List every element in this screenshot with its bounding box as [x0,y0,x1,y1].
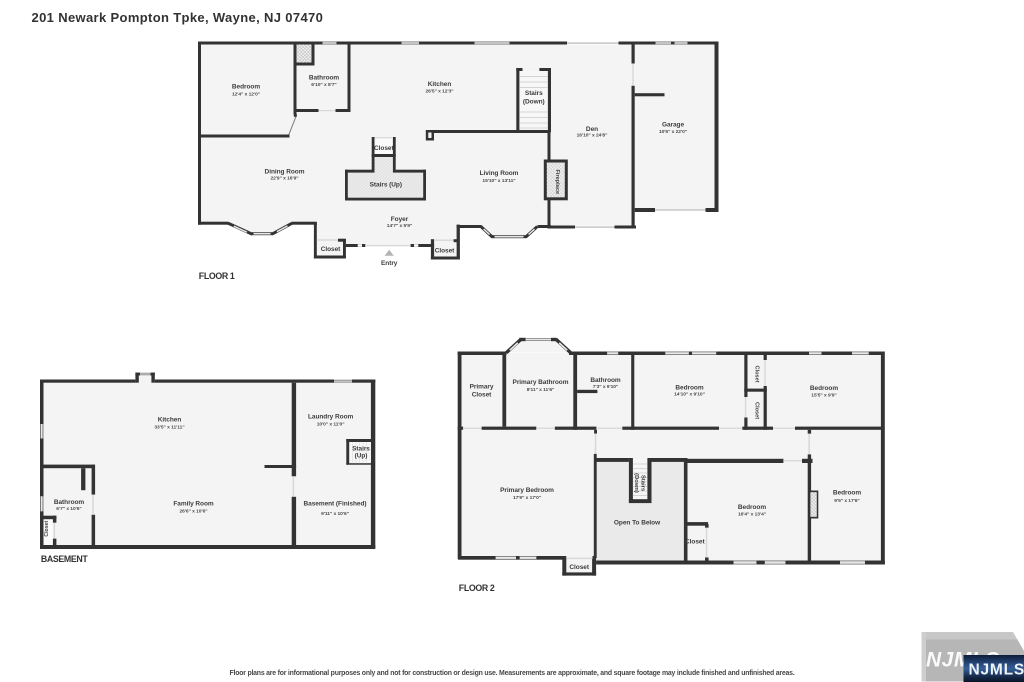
svg-text:10'5" x 22'0": 10'5" x 22'0" [659,129,687,135]
svg-text:Basement (Finished): Basement (Finished) [304,501,367,508]
svg-text:Bathroom: Bathroom [309,74,340,81]
svg-text:Kitchen: Kitchen [158,417,182,424]
svg-text:9'5" x 17'6": 9'5" x 17'6" [834,498,859,504]
svg-text:Den: Den [586,126,598,133]
svg-text:9'11" x 10'6": 9'11" x 10'6" [321,511,349,517]
svg-text:Living Room: Living Room [480,170,519,177]
svg-text:22'9" x 16'9": 22'9" x 16'9" [270,176,298,182]
svg-text:Closet: Closet [569,564,589,571]
svg-text:Open To Below: Open To Below [614,520,661,527]
svg-text:Kitchen: Kitchen [428,81,452,88]
svg-text:15'5" x 9'9": 15'5" x 9'9" [811,392,836,398]
svg-text:Laundry Room: Laundry Room [308,414,354,421]
svg-text:7'3" x 9'10": 7'3" x 9'10" [593,384,618,390]
svg-text:FLOOR 1: FLOOR 1 [199,271,235,281]
svg-text:17'9" x 17'0": 17'9" x 17'0" [513,495,541,501]
svg-text:Family Room: Family Room [173,501,214,508]
svg-text:(Up): (Up) [355,453,368,460]
svg-text:Bedroom: Bedroom [675,385,703,392]
svg-text:Primary Bathroom: Primary Bathroom [513,379,569,386]
svg-text:14'7" x 5'9": 14'7" x 5'9" [387,223,412,229]
svg-text:Closet: Closet [321,246,341,253]
svg-text:Bedroom: Bedroom [833,490,861,497]
svg-text:Stairs (Up): Stairs (Up) [370,181,402,188]
svg-text:Bathroom: Bathroom [590,377,621,384]
svg-text:Stairs: Stairs [525,90,543,97]
svg-text:14'10" x 9'10": 14'10" x 9'10" [674,392,705,398]
svg-text:Primary: Primary [470,384,494,391]
svg-text:201 Newark Pompton Tpke, Wayne: 201 Newark Pompton Tpke, Wayne, NJ 07470 [32,10,324,25]
svg-text:Garage: Garage [662,121,685,128]
svg-text:Bedroom: Bedroom [810,385,838,392]
svg-text:Closet: Closet [374,145,394,152]
svg-text:Bathroom: Bathroom [54,499,85,506]
svg-text:Dining Room: Dining Room [265,168,305,175]
svg-text:Closet: Closet [435,248,455,255]
svg-text:26'6" x 10'6": 26'6" x 10'6" [179,508,207,514]
svg-text:12'4" x 12'0": 12'4" x 12'0" [232,92,260,98]
svg-text:NJMLS: NJMLS [969,661,1024,678]
svg-text:Closet: Closet [754,366,760,383]
svg-text:8'11" x 11'6": 8'11" x 11'6" [527,387,555,393]
svg-text:Floor plans are for informatio: Floor plans are for informational purpos… [230,670,795,677]
svg-text:Closet: Closet [44,521,50,537]
svg-text:15'10" x 13'11": 15'10" x 13'11" [482,178,515,184]
svg-text:FLOOR 2: FLOOR 2 [459,583,495,593]
svg-text:16'4" x 13'4": 16'4" x 13'4" [738,512,766,518]
svg-text:(Down): (Down) [523,98,545,105]
svg-text:16'10" x 24'8": 16'10" x 24'8" [577,133,608,139]
svg-text:6'7" x 10'6": 6'7" x 10'6" [56,506,81,512]
svg-text:Stairs(Down): Stairs(Down) [633,473,646,493]
svg-text:Fireplace: Fireplace [554,170,560,195]
svg-text:10'0" x 11'0": 10'0" x 11'0" [317,422,345,428]
svg-text:Stairs: Stairs [352,445,370,452]
svg-text:26'5" x 12'3": 26'5" x 12'3" [425,89,453,95]
svg-text:33'5" x 11'11": 33'5" x 11'11" [154,425,184,431]
svg-text:Entry: Entry [381,260,398,267]
svg-text:6'10" x 8'7": 6'10" x 8'7" [311,82,336,88]
svg-text:Bedroom: Bedroom [738,504,766,511]
svg-text:Closet: Closet [685,538,705,545]
svg-text:Closet: Closet [754,402,760,419]
svg-text:Bedroom: Bedroom [232,83,260,90]
svg-text:Closet: Closet [472,392,492,399]
svg-text:Foyer: Foyer [391,216,409,223]
svg-text:BASEMENT: BASEMENT [41,554,89,564]
svg-text:Primary Bedroom: Primary Bedroom [500,487,554,494]
